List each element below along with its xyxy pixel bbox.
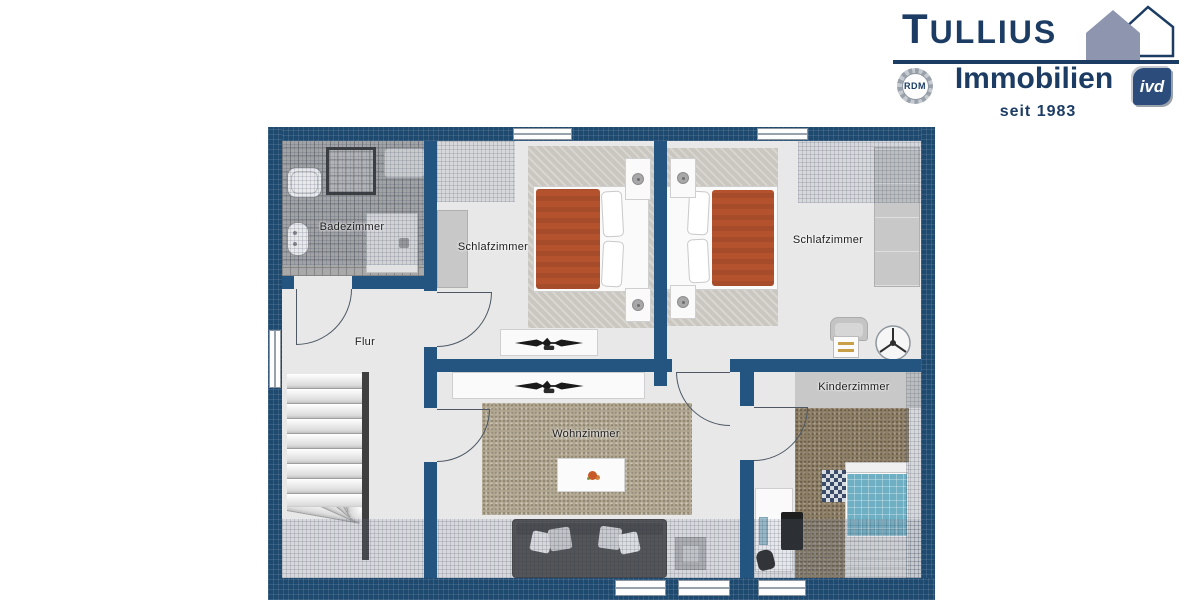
logo-division: Immobilien xyxy=(948,64,1120,94)
roof-slope-hatch xyxy=(798,141,921,203)
tv-icon xyxy=(514,335,584,351)
tv-sideboard xyxy=(500,329,598,356)
window xyxy=(513,128,572,140)
bedside-lamp xyxy=(632,173,644,185)
room-label-schlafzimmer-links: Schlafzimmer xyxy=(428,241,558,253)
ceiling-fan-icon xyxy=(874,324,912,362)
bedside-lamp xyxy=(632,299,644,311)
flower-decor xyxy=(588,471,597,480)
floorplan-page: TULLIUS RDM Immobilien ivd seit 1983 xyxy=(0,0,1200,600)
inner-wall xyxy=(352,276,437,289)
inner-wall xyxy=(424,141,437,291)
room-label-badezimmer: Badezimmer xyxy=(288,221,416,233)
bed-duvet xyxy=(536,189,600,289)
roof-slope-hatch xyxy=(282,141,424,265)
brand-initial: T xyxy=(902,5,930,52)
room-label-flur: Flur xyxy=(305,336,425,348)
bed-pillow xyxy=(601,190,624,237)
roof-slope-hatch xyxy=(282,519,921,578)
coffee-table xyxy=(557,458,625,492)
outer-wall-right xyxy=(921,127,935,600)
bed-headboard xyxy=(845,462,909,473)
window xyxy=(757,128,808,140)
window xyxy=(615,580,666,596)
window xyxy=(758,580,806,596)
window xyxy=(269,330,281,388)
bedside-lamp xyxy=(677,296,689,308)
ivd-badge-label: ivd xyxy=(1140,77,1165,97)
roof-slope-hatch xyxy=(906,372,921,578)
inner-wall xyxy=(424,359,672,372)
tv-icon xyxy=(509,378,589,394)
nightstand xyxy=(670,158,696,198)
room-label-kinderzimmer: Kinderzimmer xyxy=(789,381,919,393)
inner-wall xyxy=(282,276,294,289)
bedside-lamp xyxy=(677,172,689,184)
brand-rest: ULLIUS xyxy=(930,14,1058,50)
inner-wall xyxy=(654,141,667,386)
floorplan: Badezimmer Schlafzimmer Schlafzimmer Flu… xyxy=(268,127,935,600)
nightstand xyxy=(670,285,696,319)
room-label-schlafzimmer-rechts: Schlafzimmer xyxy=(763,234,893,246)
inner-wall xyxy=(730,359,921,372)
inner-wall xyxy=(740,372,754,406)
small-cabinet xyxy=(833,336,859,358)
rdm-badge: RDM xyxy=(897,68,933,104)
outer-wall-top xyxy=(268,127,935,141)
inner-wall xyxy=(424,347,437,408)
bed-pillow xyxy=(687,238,710,283)
checkered-pillow xyxy=(822,470,846,502)
inner-wall xyxy=(740,460,754,578)
rdm-badge-label: RDM xyxy=(902,73,929,100)
inner-wall xyxy=(424,462,437,578)
brand-name: TULLIUS xyxy=(902,8,1057,50)
room-label-wohnzimmer: Wohnzimmer xyxy=(521,428,651,440)
outer-wall-bottom xyxy=(268,578,935,600)
houses-icon xyxy=(1082,2,1178,64)
ivd-badge: ivd xyxy=(1133,68,1171,105)
nightstand xyxy=(625,288,651,322)
window xyxy=(678,580,730,596)
company-logo: TULLIUS RDM Immobilien ivd seit 1983 xyxy=(888,2,1190,126)
bed-pillow xyxy=(601,240,624,287)
roof-slope-hatch xyxy=(437,141,515,202)
tv-sideboard xyxy=(452,372,645,399)
nightstand xyxy=(625,158,651,200)
logo-since: seit 1983 xyxy=(988,103,1088,121)
